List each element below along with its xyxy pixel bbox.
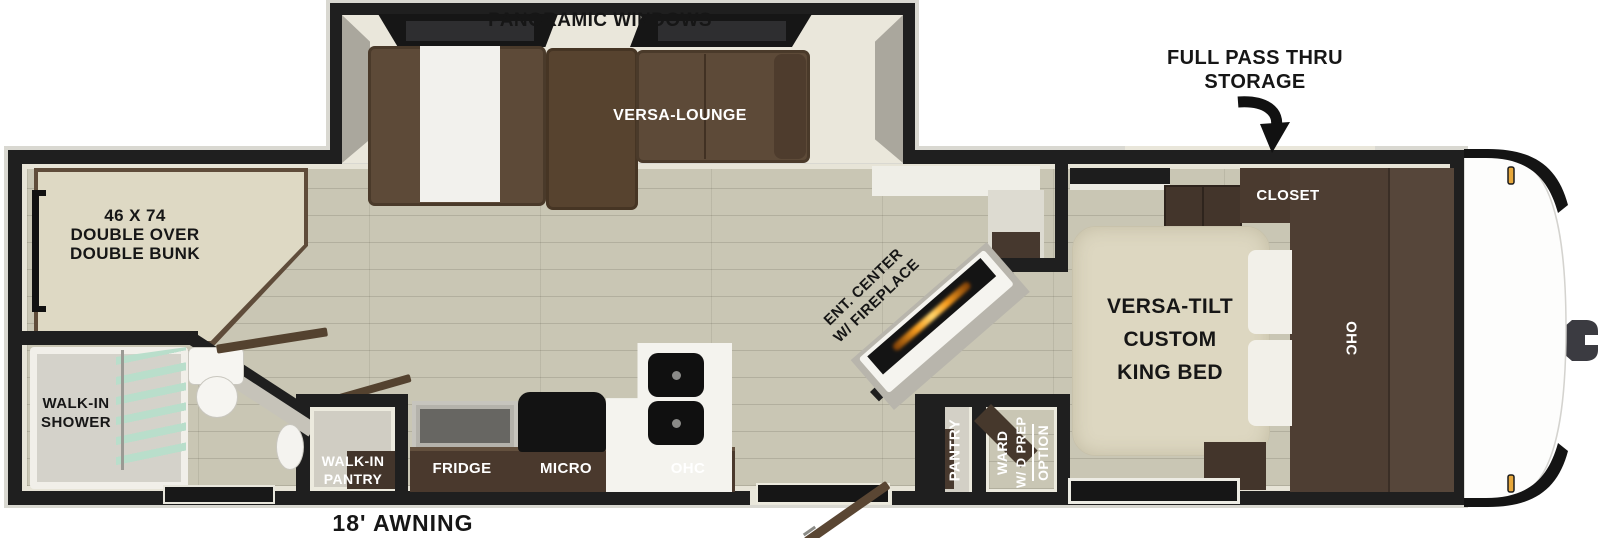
walkin-pantry-line2: PANTRY: [306, 470, 400, 488]
bedroom-window-sill: [1070, 184, 1170, 190]
shower-label-line2: SHOWER: [28, 413, 124, 432]
bedroom-top-window: [1070, 168, 1170, 184]
bedroom-entry-wall: [1055, 164, 1068, 272]
slide-sidewall-right: [875, 15, 903, 163]
closet-label: CLOSET: [1240, 188, 1336, 205]
bunk-label: 46 X 74 DOUBLE OVER DOUBLE BUNK: [40, 206, 230, 263]
bunk-label-line3: DOUBLE BUNK: [40, 244, 230, 263]
microwave: [518, 392, 606, 452]
bedroom-bottom-window: [1068, 478, 1240, 504]
marker-light-top: [1508, 167, 1514, 184]
sink-basin-upper: [648, 353, 704, 397]
shower-glass-shelves: [116, 347, 186, 471]
king-bed-line3: KING BED: [1078, 356, 1262, 389]
walkin-pantry-right-wall: [395, 394, 408, 505]
ward-label-line2: W/ D PREP: [1015, 412, 1030, 492]
bedroom-ohc-label: OHC: [1342, 298, 1359, 378]
ward-label-rule: [1032, 424, 1034, 481]
floorplan: PANORAMIC WINDOWS VERSA-LOUNGE 46 X 74 D…: [0, 0, 1600, 538]
pass-thru-storage-label: FULL PASS THRU STORAGE: [1140, 46, 1370, 94]
sofa-bed: [368, 46, 546, 206]
door-handle: [803, 526, 816, 536]
pass-thru-line1: FULL PASS THRU: [1140, 46, 1370, 70]
top-wall-right: [903, 150, 1468, 164]
slide-right-wall: [903, 3, 915, 163]
pantry-label: PANTRY: [948, 421, 965, 481]
versa-lounge-label: VERSA-LOUNGE: [600, 107, 760, 125]
ward-label-line1: WARD: [995, 413, 1011, 493]
bunk-label-line2: DOUBLE OVER: [40, 225, 230, 244]
bedroom-wardrobe-wall: [1290, 168, 1452, 492]
rear-wall: [8, 150, 22, 505]
wardrobe-seam-panel: [1388, 168, 1454, 492]
bath-sink: [276, 424, 304, 470]
front-cap-body: [1464, 153, 1566, 503]
sink-basin-lower: [648, 401, 704, 445]
lounge-chaise: [546, 48, 638, 210]
marker-light-bottom: [1508, 475, 1514, 492]
walkin-pantry-line1: WALK-IN: [306, 452, 400, 470]
bath-floor-vent: [163, 485, 275, 504]
sofa-bed-table: [420, 46, 500, 202]
shower-label-line1: WALK-IN: [28, 394, 124, 413]
drain: [672, 419, 681, 428]
storage-arrow: [1232, 96, 1292, 156]
kitchen-ohc-label: OHC: [638, 461, 738, 478]
fridge-lid: [420, 409, 510, 443]
slide-sidewall-left: [342, 15, 370, 163]
ward-label-line3: OPTION: [1036, 413, 1052, 493]
panoramic-windows-label: PANORAMIC WINDOWS: [360, 10, 840, 31]
slide-left-wall: [330, 3, 342, 163]
walk-in-shower-label: WALK-IN SHOWER: [28, 394, 124, 432]
pass-thru-line2: STORAGE: [1140, 70, 1370, 94]
front-cap: [1464, 147, 1600, 509]
bunk-label-line1: 46 X 74: [40, 206, 230, 225]
walkin-pantry-top-wall: [296, 394, 408, 407]
drain: [672, 371, 681, 380]
cabinet-seam: [1202, 187, 1204, 231]
fridge-top: [412, 401, 518, 451]
fridge-label: FRIDGE: [412, 461, 512, 478]
walkin-pantry-label: WALK-IN PANTRY: [306, 452, 400, 488]
sofa-arm: [774, 54, 806, 159]
king-bed-label: VERSA-TILT CUSTOM KING BED: [1078, 290, 1262, 389]
micro-label: MICRO: [516, 461, 616, 478]
bunk-bath-wall: [8, 331, 198, 345]
king-bed-line2: CUSTOM: [1078, 323, 1262, 356]
toilet-bowl: [196, 376, 238, 418]
top-wall-left: [8, 150, 342, 164]
king-bed-line1: VERSA-TILT: [1078, 290, 1262, 323]
awning-label: 18' AWNING: [318, 511, 488, 537]
